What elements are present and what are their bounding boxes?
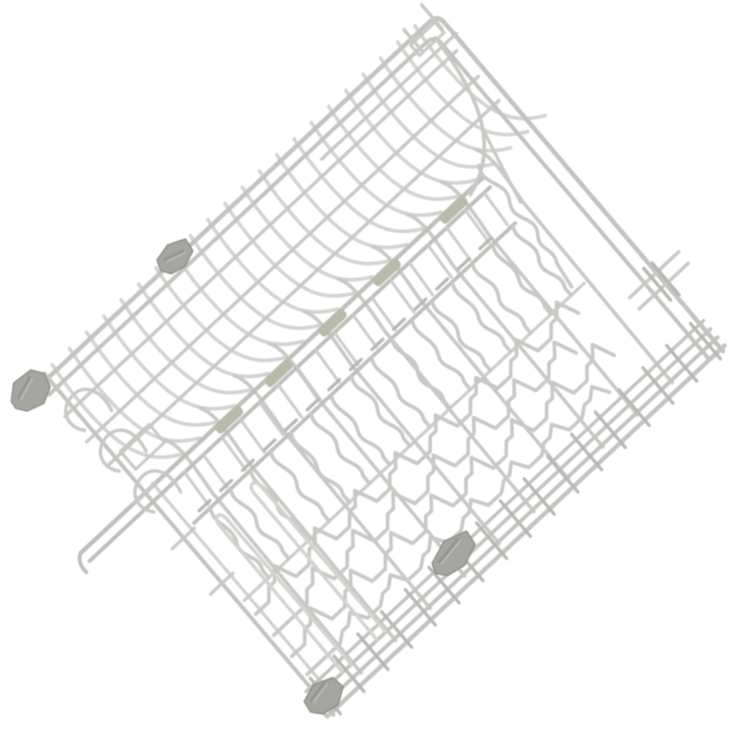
serpentine-tine-wire <box>409 319 472 392</box>
inner-rim-wire <box>49 35 709 718</box>
axle-connector-wire <box>482 193 510 225</box>
axle-connector-wire <box>182 472 210 504</box>
axle-connector-wire <box>295 367 323 399</box>
floor-wire <box>441 179 642 415</box>
serpentine-tine-wire <box>329 395 392 468</box>
axle-connector-wire <box>314 350 342 382</box>
serpentine-tine-wire <box>450 282 513 355</box>
dishwasher-rack-photo <box>0 0 736 736</box>
wire-basket <box>0 0 736 736</box>
axle-connector-wire <box>388 280 416 312</box>
serpentine-tine-wire <box>510 225 573 298</box>
serpentine-tine-wire <box>349 376 412 449</box>
wall-rail-wire <box>322 33 457 159</box>
wall-rail-wire <box>87 76 479 442</box>
axle-connector-wire <box>276 385 304 417</box>
serpentine-tine-wire <box>490 244 553 317</box>
serpentine-tine-wire <box>288 432 351 505</box>
product-photo-canvas <box>0 0 736 736</box>
serpentine-tine-wire <box>429 300 492 373</box>
floor-wire <box>165 437 366 673</box>
axle-connector-wire <box>445 228 473 260</box>
axle-connector-wire <box>239 420 267 452</box>
axle-connector-wire <box>351 315 379 347</box>
serpentine-tine-wire <box>268 451 331 524</box>
serpentine-tine-wire <box>369 357 432 430</box>
axle-connector-wire <box>257 402 285 434</box>
stemware-wave-wire <box>473 163 580 287</box>
